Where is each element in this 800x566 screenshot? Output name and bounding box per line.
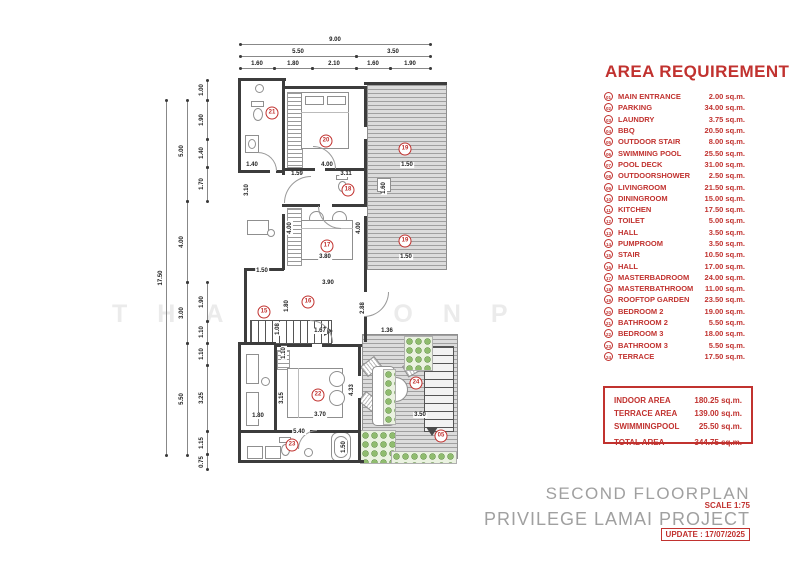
pillow-symbol xyxy=(327,96,346,105)
legend-item-number: 20 xyxy=(604,307,613,316)
legend-item-label: OUTDOOR STAIR xyxy=(618,137,680,146)
dimension-tick xyxy=(239,43,242,46)
chair-symbol xyxy=(261,377,270,386)
legend-item-area: 5.00 sq.m. xyxy=(709,216,745,225)
summary-value: 180.25 sq.m. xyxy=(694,396,742,405)
dimension-line xyxy=(207,454,208,469)
legend-row: 04BBQ20.50 sq.m. xyxy=(604,125,745,136)
wall-segment xyxy=(282,86,367,89)
legend-row: 12TOILET5.00 sq.m. xyxy=(604,215,745,226)
legend-item-area: 10.50 sq.m. xyxy=(705,250,745,259)
chair-symbol xyxy=(267,229,275,237)
dimension-tick xyxy=(165,99,168,102)
dimension-label: 5.00 xyxy=(179,144,185,158)
room-dimension-label: 1.08 xyxy=(275,322,281,336)
dimension-tick xyxy=(429,67,432,70)
legend-item-area: 31.00 sq.m. xyxy=(705,160,745,169)
room-number-badge: 23 xyxy=(286,439,299,452)
room-dimension-label: 1.36 xyxy=(380,328,394,334)
summary-row: SWIMMINGPOOL25.50 sq.m. xyxy=(614,420,742,433)
dimension-label: 9.00 xyxy=(328,37,342,43)
legend-item-number: 03 xyxy=(604,115,613,124)
legend-item-number: 16 xyxy=(604,262,613,271)
dimension-line xyxy=(207,167,208,201)
legend-item-area: 17.50 sq.m. xyxy=(705,352,745,361)
legend-item-area: 8.00 sq.m. xyxy=(709,137,745,146)
legend-item-area: 11.00 sq.m. xyxy=(705,284,745,293)
room-dimension-label: 4.00 xyxy=(356,221,362,235)
legend-row: 21BATHROOM 25.50 sq.m. xyxy=(604,317,745,328)
dimension-line xyxy=(274,68,312,69)
room-dimension-label: 3.90 xyxy=(321,280,335,286)
room-dimension-label: 1.50 xyxy=(400,162,414,168)
vanity-symbol xyxy=(265,446,281,459)
legend-item-label: OUTDOORSHOWER xyxy=(618,171,690,180)
legend-item-area: 3.50 sq.m. xyxy=(709,228,745,237)
room-number-badge: 19 xyxy=(399,235,412,248)
legend-item-number: 15 xyxy=(604,250,613,259)
legend-item-label: POOL DECK xyxy=(618,160,662,169)
legend-row: 09LIVINGROOM21.50 sq.m. xyxy=(604,181,745,192)
wall-segment xyxy=(282,214,285,270)
wall-segment xyxy=(238,342,241,463)
summary-row: INDOOR AREA180.25 sq.m. xyxy=(614,394,742,407)
summary-value: 139.00 sq.m. xyxy=(694,409,742,418)
wall-segment xyxy=(322,344,362,347)
legend-item-number: 14 xyxy=(604,239,613,248)
room-dimension-label: 5.40 xyxy=(292,429,306,435)
dimension-label: 1.90 xyxy=(199,113,205,127)
legend-item-number: 10 xyxy=(604,194,613,203)
area-summary-box: INDOOR AREA180.25 sq.m.TERRACE AREA139.0… xyxy=(603,386,753,444)
room-number-badge: 17 xyxy=(321,240,334,253)
room-number-badge: 19 xyxy=(399,143,412,156)
legend-row: 06SWIMMING POOL25.50 sq.m. xyxy=(604,147,745,158)
dimension-tick xyxy=(206,138,209,141)
legend-row: 17MASTERBADROOM24.00 sq.m. xyxy=(604,272,745,283)
summary-label: TERRACE AREA xyxy=(614,409,677,418)
legend-item-label: PUMPROOM xyxy=(618,239,663,248)
wall-segment xyxy=(358,344,361,376)
dimension-tick xyxy=(239,55,242,58)
dimension-tick xyxy=(429,55,432,58)
legend-row: 16HALL17.00 sq.m. xyxy=(604,260,745,271)
room-dimension-label: 3.70 xyxy=(313,412,327,418)
dimension-label: 5.50 xyxy=(179,392,185,406)
legend-item-label: LAUNDRY xyxy=(618,115,654,124)
room-dimension-label: 3.15 xyxy=(279,391,285,405)
legend-item-area: 17.00 sq.m. xyxy=(705,262,745,271)
dimension-tick xyxy=(355,67,358,70)
wall-segment xyxy=(274,347,277,430)
room-dimension-label: 1.50 xyxy=(255,268,269,274)
dimension-tick xyxy=(186,99,189,102)
legend-item-label: TOILET xyxy=(618,216,645,225)
room-dimension-label: 3.10 xyxy=(244,183,250,197)
legend-item-label: MASTERBATHROOM xyxy=(618,284,693,293)
legend-row: 14PUMPROOM3.50 sq.m. xyxy=(604,238,745,249)
wall-segment xyxy=(274,344,312,347)
dimension-tick xyxy=(206,320,209,323)
legend-row: 02PARKING34.00 sq.m. xyxy=(604,102,745,113)
summary-row: TERRACE AREA139.00 sq.m. xyxy=(614,407,742,420)
legend-item-area: 2.50 sq.m. xyxy=(709,171,745,180)
legend-item-area: 25.50 sq.m. xyxy=(705,149,745,158)
legend-item-label: SWIMMING POOL xyxy=(618,149,681,158)
dimension-line xyxy=(207,321,208,343)
room-number-badge: 18 xyxy=(342,184,355,197)
legend-item-area: 2.00 sq.m. xyxy=(709,92,745,101)
pillow-symbol xyxy=(305,96,324,105)
legend-item-label: BEDROOM 3 xyxy=(618,329,663,338)
room-dimension-label: 1.10 xyxy=(281,346,287,360)
dimension-tick xyxy=(186,454,189,457)
legend-row: 05OUTDOOR STAIR8.00 sq.m. xyxy=(604,136,745,147)
dimension-line xyxy=(356,56,430,57)
wall-segment xyxy=(238,460,364,463)
dimension-label: 0.75 xyxy=(199,455,205,469)
legend-row: 19ROOFTOP GARDEN23.50 sq.m. xyxy=(604,294,745,305)
dimension-label: 3.50 xyxy=(386,49,400,55)
dimension-line xyxy=(240,56,356,57)
vanity-symbol xyxy=(247,446,263,459)
dimension-line xyxy=(207,431,208,454)
wall-segment xyxy=(364,316,367,342)
legend-title: AREA REQUIREMENT xyxy=(605,62,789,82)
dimension-label: 1.40 xyxy=(199,146,205,160)
bed-fold-line xyxy=(301,228,353,229)
legend-row: 13HALL3.50 sq.m. xyxy=(604,227,745,238)
dimension-label: 1.90 xyxy=(199,295,205,309)
dimension-line xyxy=(187,100,188,201)
room-dimension-label: 4.00 xyxy=(287,221,293,235)
desk-symbol xyxy=(246,354,259,384)
legend-item-label: MASTERBADROOM xyxy=(618,273,689,282)
toilet-tank-symbol xyxy=(251,101,264,107)
dimension-tick xyxy=(273,67,276,70)
legend-row: 01MAIN ENTRANCE2.00 sq.m. xyxy=(604,91,745,102)
legend-item-area: 18.00 sq.m. xyxy=(705,329,745,338)
legend-rows: 01MAIN ENTRANCE2.00 sq.m.02PARKING34.00 … xyxy=(604,91,745,362)
planter-symbol xyxy=(383,369,396,425)
room-dimension-label: 3.50 xyxy=(413,412,427,418)
dimension-line xyxy=(240,44,430,45)
dimension-line xyxy=(312,68,356,69)
legend-item-label: TERRACE xyxy=(618,352,654,361)
room-dimension-label: 3.11 xyxy=(339,171,352,177)
wall-segment xyxy=(310,430,360,433)
toilet-symbol xyxy=(253,108,263,121)
legend-row: 23BATHROOM 35.50 sq.m. xyxy=(604,340,745,351)
legend-item-label: HALL xyxy=(618,262,638,271)
dimension-line xyxy=(207,365,208,431)
wall-segment xyxy=(238,430,298,433)
legend-row: 08OUTDOORSHOWER2.50 sq.m. xyxy=(604,170,745,181)
room-number-badge: 05 xyxy=(435,430,448,443)
legend-row: 07POOL DECK31.00 sq.m. xyxy=(604,159,745,170)
wall-segment xyxy=(364,216,367,272)
dimension-tick xyxy=(186,342,189,345)
dimension-tick xyxy=(186,281,189,284)
dimension-tick xyxy=(165,454,168,457)
closet-symbol xyxy=(287,208,302,266)
sofa-symbol xyxy=(246,392,259,426)
planter-symbol xyxy=(404,336,433,371)
legend-item-label: BEDROOM 2 xyxy=(618,307,663,316)
room-number-badge: 24 xyxy=(410,377,423,390)
door-swing-arc xyxy=(364,292,389,317)
dimension-line xyxy=(207,282,208,321)
legend-item-number: 05 xyxy=(604,137,613,146)
legend-item-area: 3.75 sq.m. xyxy=(709,115,745,124)
legend-item-number: 11 xyxy=(604,205,613,214)
legend-row: 20BEDROOM 219.00 sq.m. xyxy=(604,306,745,317)
room-dimension-label: 1.80 xyxy=(284,299,290,313)
legend-row: 22BEDROOM 318.00 sq.m. xyxy=(604,328,745,339)
dimension-label: 3.00 xyxy=(179,306,185,320)
room-dimension-label: 1.80 xyxy=(251,413,265,419)
room-dimension-label: 1.50 xyxy=(399,254,413,260)
dimension-tick xyxy=(206,430,209,433)
project-title: PRIVILEGE LAMAI PROJECT xyxy=(484,509,750,530)
pillow-symbol xyxy=(329,371,345,387)
wall-segment xyxy=(238,78,241,173)
dimension-line xyxy=(207,80,208,100)
wall-segment xyxy=(364,270,367,292)
dimension-label: 1.15 xyxy=(199,436,205,450)
dimension-line xyxy=(390,68,430,69)
dimension-tick xyxy=(206,79,209,82)
legend-item-label: ROOFTOP GARDEN xyxy=(618,295,689,304)
room-dimension-label: 2.88 xyxy=(360,301,366,315)
legend-item-area: 21.50 sq.m. xyxy=(705,183,745,192)
dimension-tick xyxy=(186,200,189,203)
dimension-label: 1.60 xyxy=(366,61,380,67)
legend-item-number: 07 xyxy=(604,160,613,169)
legend-item-label: BATHROOM 3 xyxy=(618,341,668,350)
legend-item-number: 01 xyxy=(604,92,613,101)
legend-item-number: 06 xyxy=(604,149,613,158)
dimension-tick xyxy=(206,342,209,345)
dimension-label: 3.25 xyxy=(199,391,205,405)
dimension-tick xyxy=(206,468,209,471)
legend-item-number: 21 xyxy=(604,318,613,327)
legend-item-label: KITCHEN xyxy=(618,205,651,214)
dimension-tick xyxy=(355,55,358,58)
room-number-badge: 22 xyxy=(312,389,325,402)
legend-item-number: 23 xyxy=(604,341,613,350)
dimension-tick xyxy=(206,453,209,456)
room-number-badge: 20 xyxy=(320,135,333,148)
dimension-label: 1.60 xyxy=(250,61,264,67)
legend-row: 11KITCHEN17.50 sq.m. xyxy=(604,204,745,215)
legend-item-number: 24 xyxy=(604,352,613,361)
room-dimension-label: 3.80 xyxy=(318,254,332,260)
legend-item-label: BATHROOM 2 xyxy=(618,318,668,327)
legend-item-label: MAIN ENTRANCE xyxy=(618,92,681,101)
floorplan-sheet: THAWIMONP xyxy=(0,0,800,566)
wall-segment xyxy=(238,78,286,81)
room-dimension-label: 1.40 xyxy=(245,162,259,168)
dimension-tick xyxy=(389,67,392,70)
legend-item-label: DININGROOM xyxy=(618,194,668,203)
bed-fold-line xyxy=(301,112,349,113)
sink-basin-symbol xyxy=(248,139,256,149)
legend-item-area: 23.50 sq.m. xyxy=(705,295,745,304)
dimension-line xyxy=(166,100,167,455)
washing-machine-symbol xyxy=(255,84,264,93)
dimension-line xyxy=(356,68,390,69)
legend-item-area: 3.50 sq.m. xyxy=(709,239,745,248)
wall-segment xyxy=(282,89,285,175)
wall-segment xyxy=(364,82,447,85)
dimension-line xyxy=(187,282,188,343)
wall-segment xyxy=(282,204,320,207)
legend-item-label: LIVINGROOM xyxy=(618,183,666,192)
dimension-tick xyxy=(206,281,209,284)
dimension-tick xyxy=(206,166,209,169)
legend-item-label: STAIR xyxy=(618,250,640,259)
legend-item-number: 08 xyxy=(604,171,613,180)
dimension-tick xyxy=(429,43,432,46)
legend-item-area: 5.50 sq.m. xyxy=(709,318,745,327)
room-number-badge: 21 xyxy=(266,107,279,120)
summary-total-row: TOTAL AREA344.75 sq.m. xyxy=(614,436,742,449)
room-dimension-label: 1.67 xyxy=(313,328,327,334)
wall-segment xyxy=(238,342,276,345)
wall-segment xyxy=(364,139,367,204)
dimension-line xyxy=(240,68,274,69)
dimension-tick xyxy=(206,99,209,102)
legend-row: 15STAIR10.50 sq.m. xyxy=(604,249,745,260)
legend-item-number: 22 xyxy=(604,329,613,338)
legend-row: 18MASTERBATHROOM11.00 sq.m. xyxy=(604,283,745,294)
dimension-label: 1.00 xyxy=(199,83,205,97)
dimension-line xyxy=(207,139,208,167)
total-area-label: TOTAL AREA xyxy=(614,438,664,447)
wall-segment xyxy=(364,89,367,127)
dimension-label: 1.10 xyxy=(199,325,205,339)
dimension-label: 1.90 xyxy=(403,61,417,67)
dimension-line xyxy=(187,343,188,455)
dimension-label: 1.70 xyxy=(199,177,205,191)
hedge-row-symbol xyxy=(391,451,457,464)
bed-fold-line xyxy=(298,368,299,418)
room-number-badge: 15 xyxy=(258,306,271,319)
dimension-label: 17.50 xyxy=(158,269,164,286)
dimension-label: 5.50 xyxy=(291,49,305,55)
legend-item-label: BBQ xyxy=(618,126,635,135)
legend-item-label: HALL xyxy=(618,228,638,237)
desk-symbol xyxy=(247,220,269,235)
room-dimension-label: 1.59 xyxy=(290,171,304,177)
room-dimension-label: 4.00 xyxy=(320,162,334,168)
room-number-badge: 16 xyxy=(302,296,315,309)
total-area-value: 344.75 sq.m. xyxy=(694,438,742,447)
sink-symbol xyxy=(304,448,313,457)
room-dimension-label: 1.50 xyxy=(341,440,347,454)
dimension-label: 1.10 xyxy=(199,347,205,361)
update-date: UPDATE : 17/07/2025 xyxy=(661,528,750,541)
room-dimension-label: 1.60 xyxy=(381,181,387,195)
pillow-symbol xyxy=(329,390,345,406)
room-dimension-label: 4.33 xyxy=(349,383,355,397)
legend-item-number: 02 xyxy=(604,103,613,112)
wall-segment xyxy=(244,268,247,342)
legend-item-number: 18 xyxy=(604,284,613,293)
dimension-line xyxy=(207,100,208,139)
dimension-tick xyxy=(206,200,209,203)
dimension-line xyxy=(207,343,208,365)
legend-item-area: 24.00 sq.m. xyxy=(705,273,745,282)
legend-row: 24TERRACE17.50 sq.m. xyxy=(604,351,745,362)
dimension-tick xyxy=(206,364,209,367)
legend-item-number: 19 xyxy=(604,295,613,304)
legend-item-number: 12 xyxy=(604,216,613,225)
dimension-line xyxy=(187,201,188,282)
summary-label: SWIMMINGPOOL xyxy=(614,422,679,431)
summary-label: INDOOR AREA xyxy=(614,396,671,405)
legend-item-area: 20.50 sq.m. xyxy=(705,126,745,135)
legend-item-area: 5.50 sq.m. xyxy=(709,341,745,350)
dimension-label: 1.80 xyxy=(286,61,300,67)
dimension-label: 2.10 xyxy=(327,61,341,67)
legend-row: 10DININGROOM15.00 sq.m. xyxy=(604,193,745,204)
legend-item-area: 17.50 sq.m. xyxy=(705,205,745,214)
legend-row: 03LAUNDRY3.75 sq.m. xyxy=(604,114,745,125)
legend-item-area: 19.00 sq.m. xyxy=(705,307,745,316)
dimension-label: 4.00 xyxy=(179,235,185,249)
legend-item-number: 04 xyxy=(604,126,613,135)
legend-item-label: PARKING xyxy=(618,103,652,112)
dimension-tick xyxy=(239,67,242,70)
dimension-tick xyxy=(311,67,314,70)
legend-item-number: 09 xyxy=(604,183,613,192)
legend-item-number: 13 xyxy=(604,228,613,237)
legend-item-area: 15.00 sq.m. xyxy=(705,194,745,203)
legend-item-area: 34.00 sq.m. xyxy=(705,103,745,112)
summary-value: 25.50 sq.m. xyxy=(699,422,742,431)
legend-item-number: 17 xyxy=(604,273,613,282)
